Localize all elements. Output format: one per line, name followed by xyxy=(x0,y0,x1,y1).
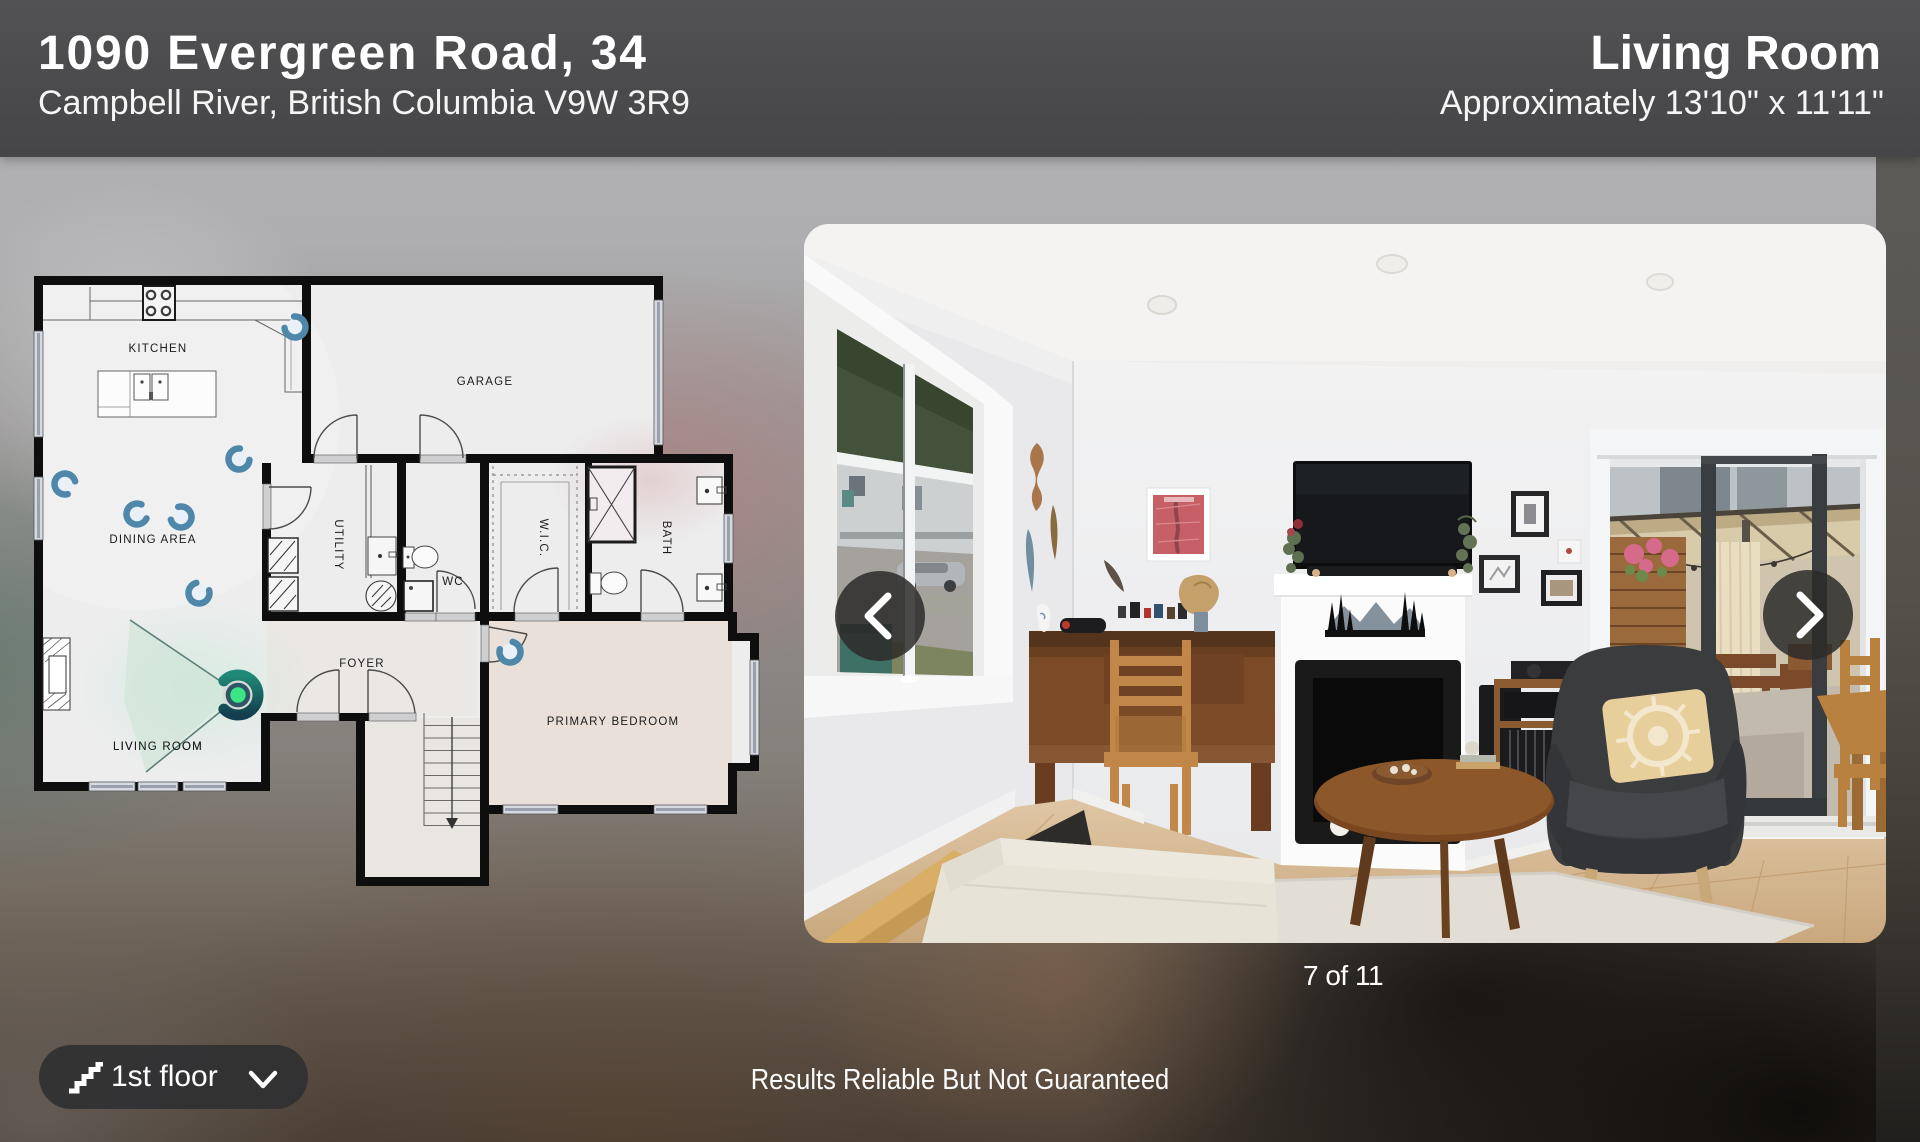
svg-text:UTILITY: UTILITY xyxy=(332,519,344,570)
svg-text:PRIMARY BEDROOM: PRIMARY BEDROOM xyxy=(547,716,680,728)
svg-text:BATH: BATH xyxy=(660,521,672,556)
svg-text:LIVING ROOM: LIVING ROOM xyxy=(113,741,203,753)
svg-text:DINING AREA: DINING AREA xyxy=(109,534,196,546)
svg-text:W.I.C.: W.I.C. xyxy=(537,519,549,558)
svg-text:FOYER: FOYER xyxy=(339,658,385,670)
svg-text:GARAGE: GARAGE xyxy=(457,376,513,388)
svg-text:WC: WC xyxy=(442,576,464,588)
svg-text:KITCHEN: KITCHEN xyxy=(129,343,188,355)
